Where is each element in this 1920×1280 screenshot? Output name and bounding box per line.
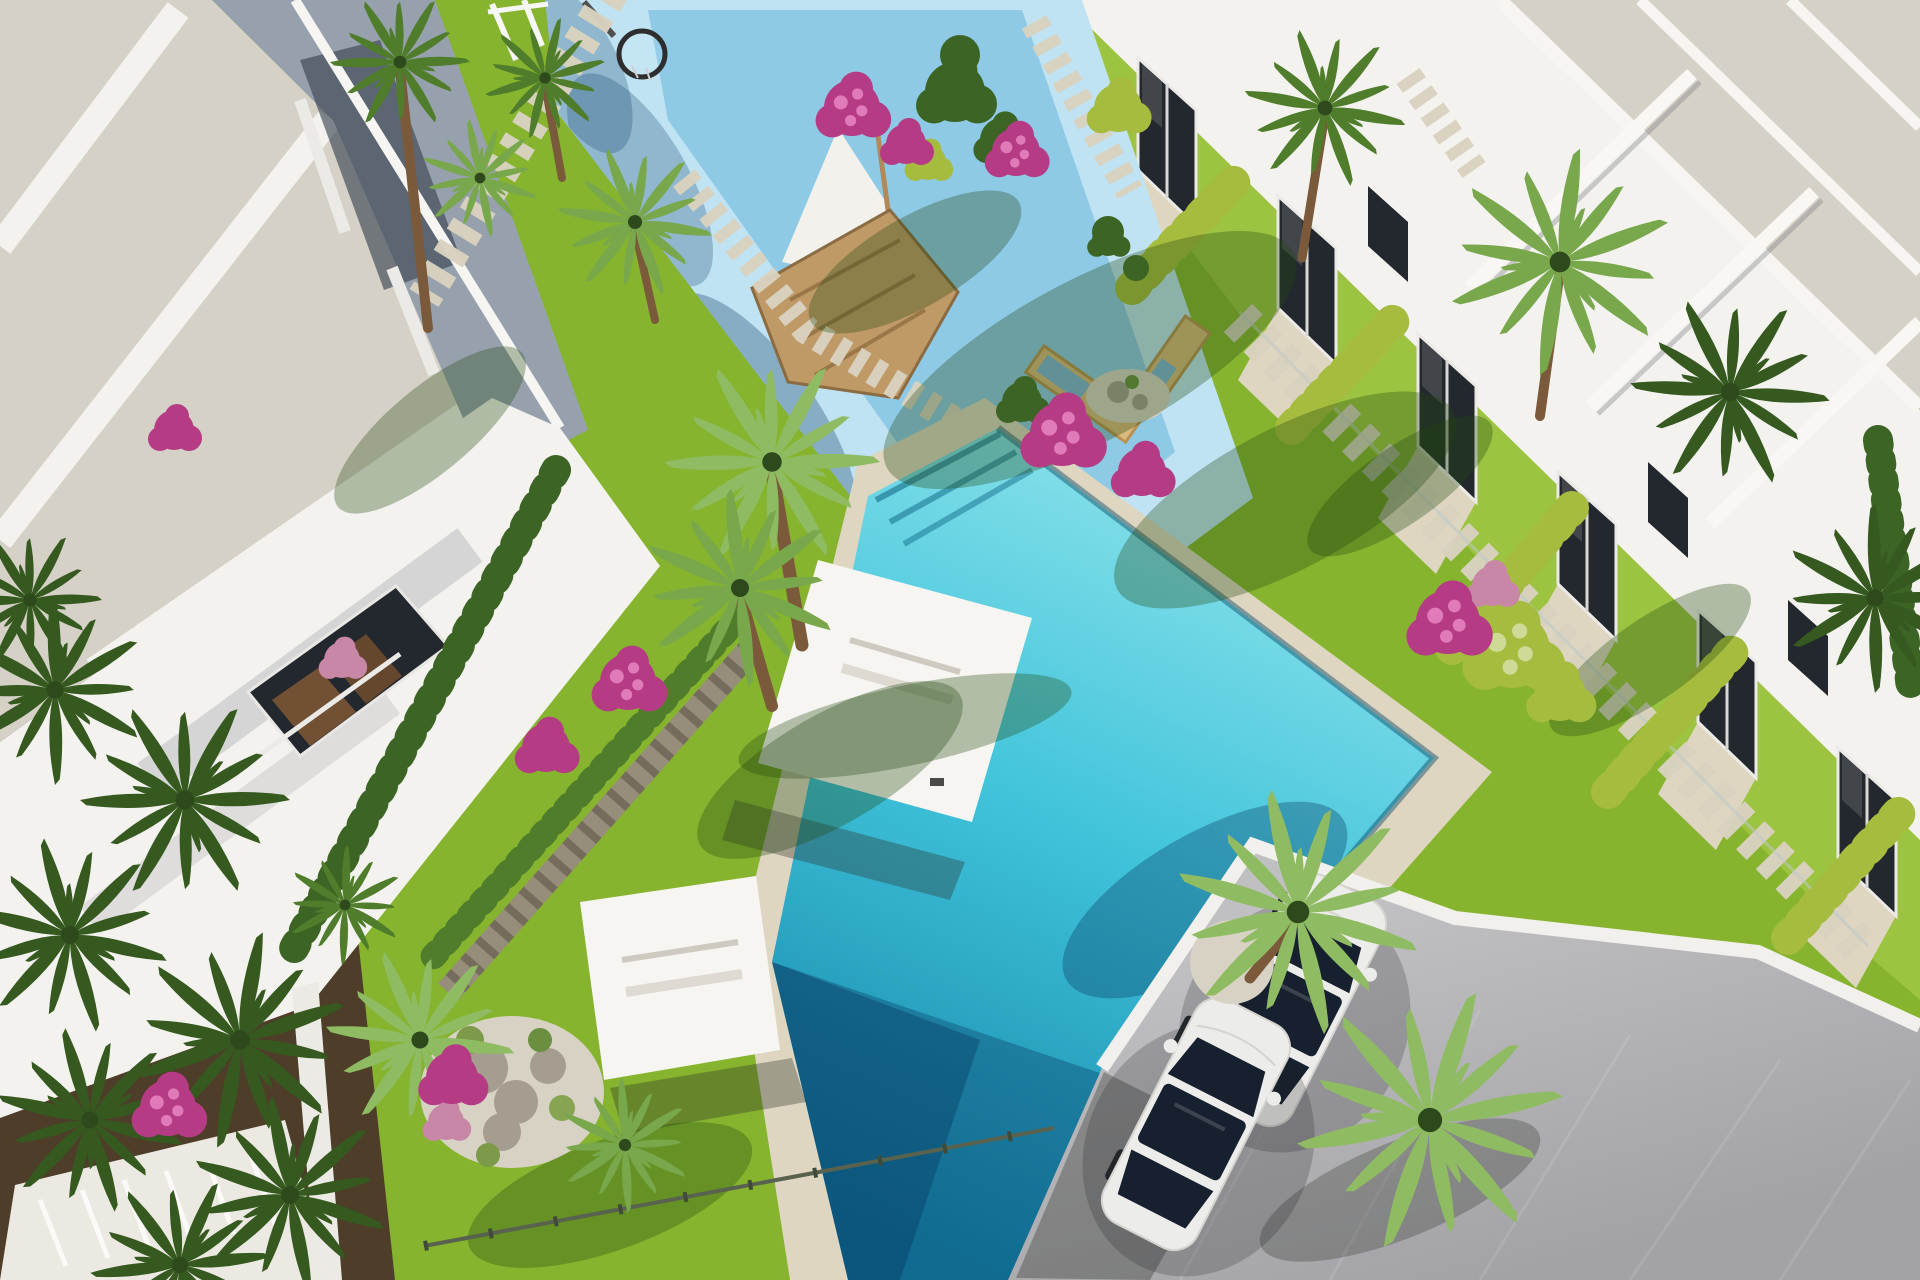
scene-svg bbox=[0, 0, 1920, 1280]
aerial-render bbox=[0, 0, 1920, 1280]
lounger-detail bbox=[930, 778, 944, 786]
pergola-canopy bbox=[580, 876, 780, 1080]
hoop-ring bbox=[619, 31, 665, 77]
